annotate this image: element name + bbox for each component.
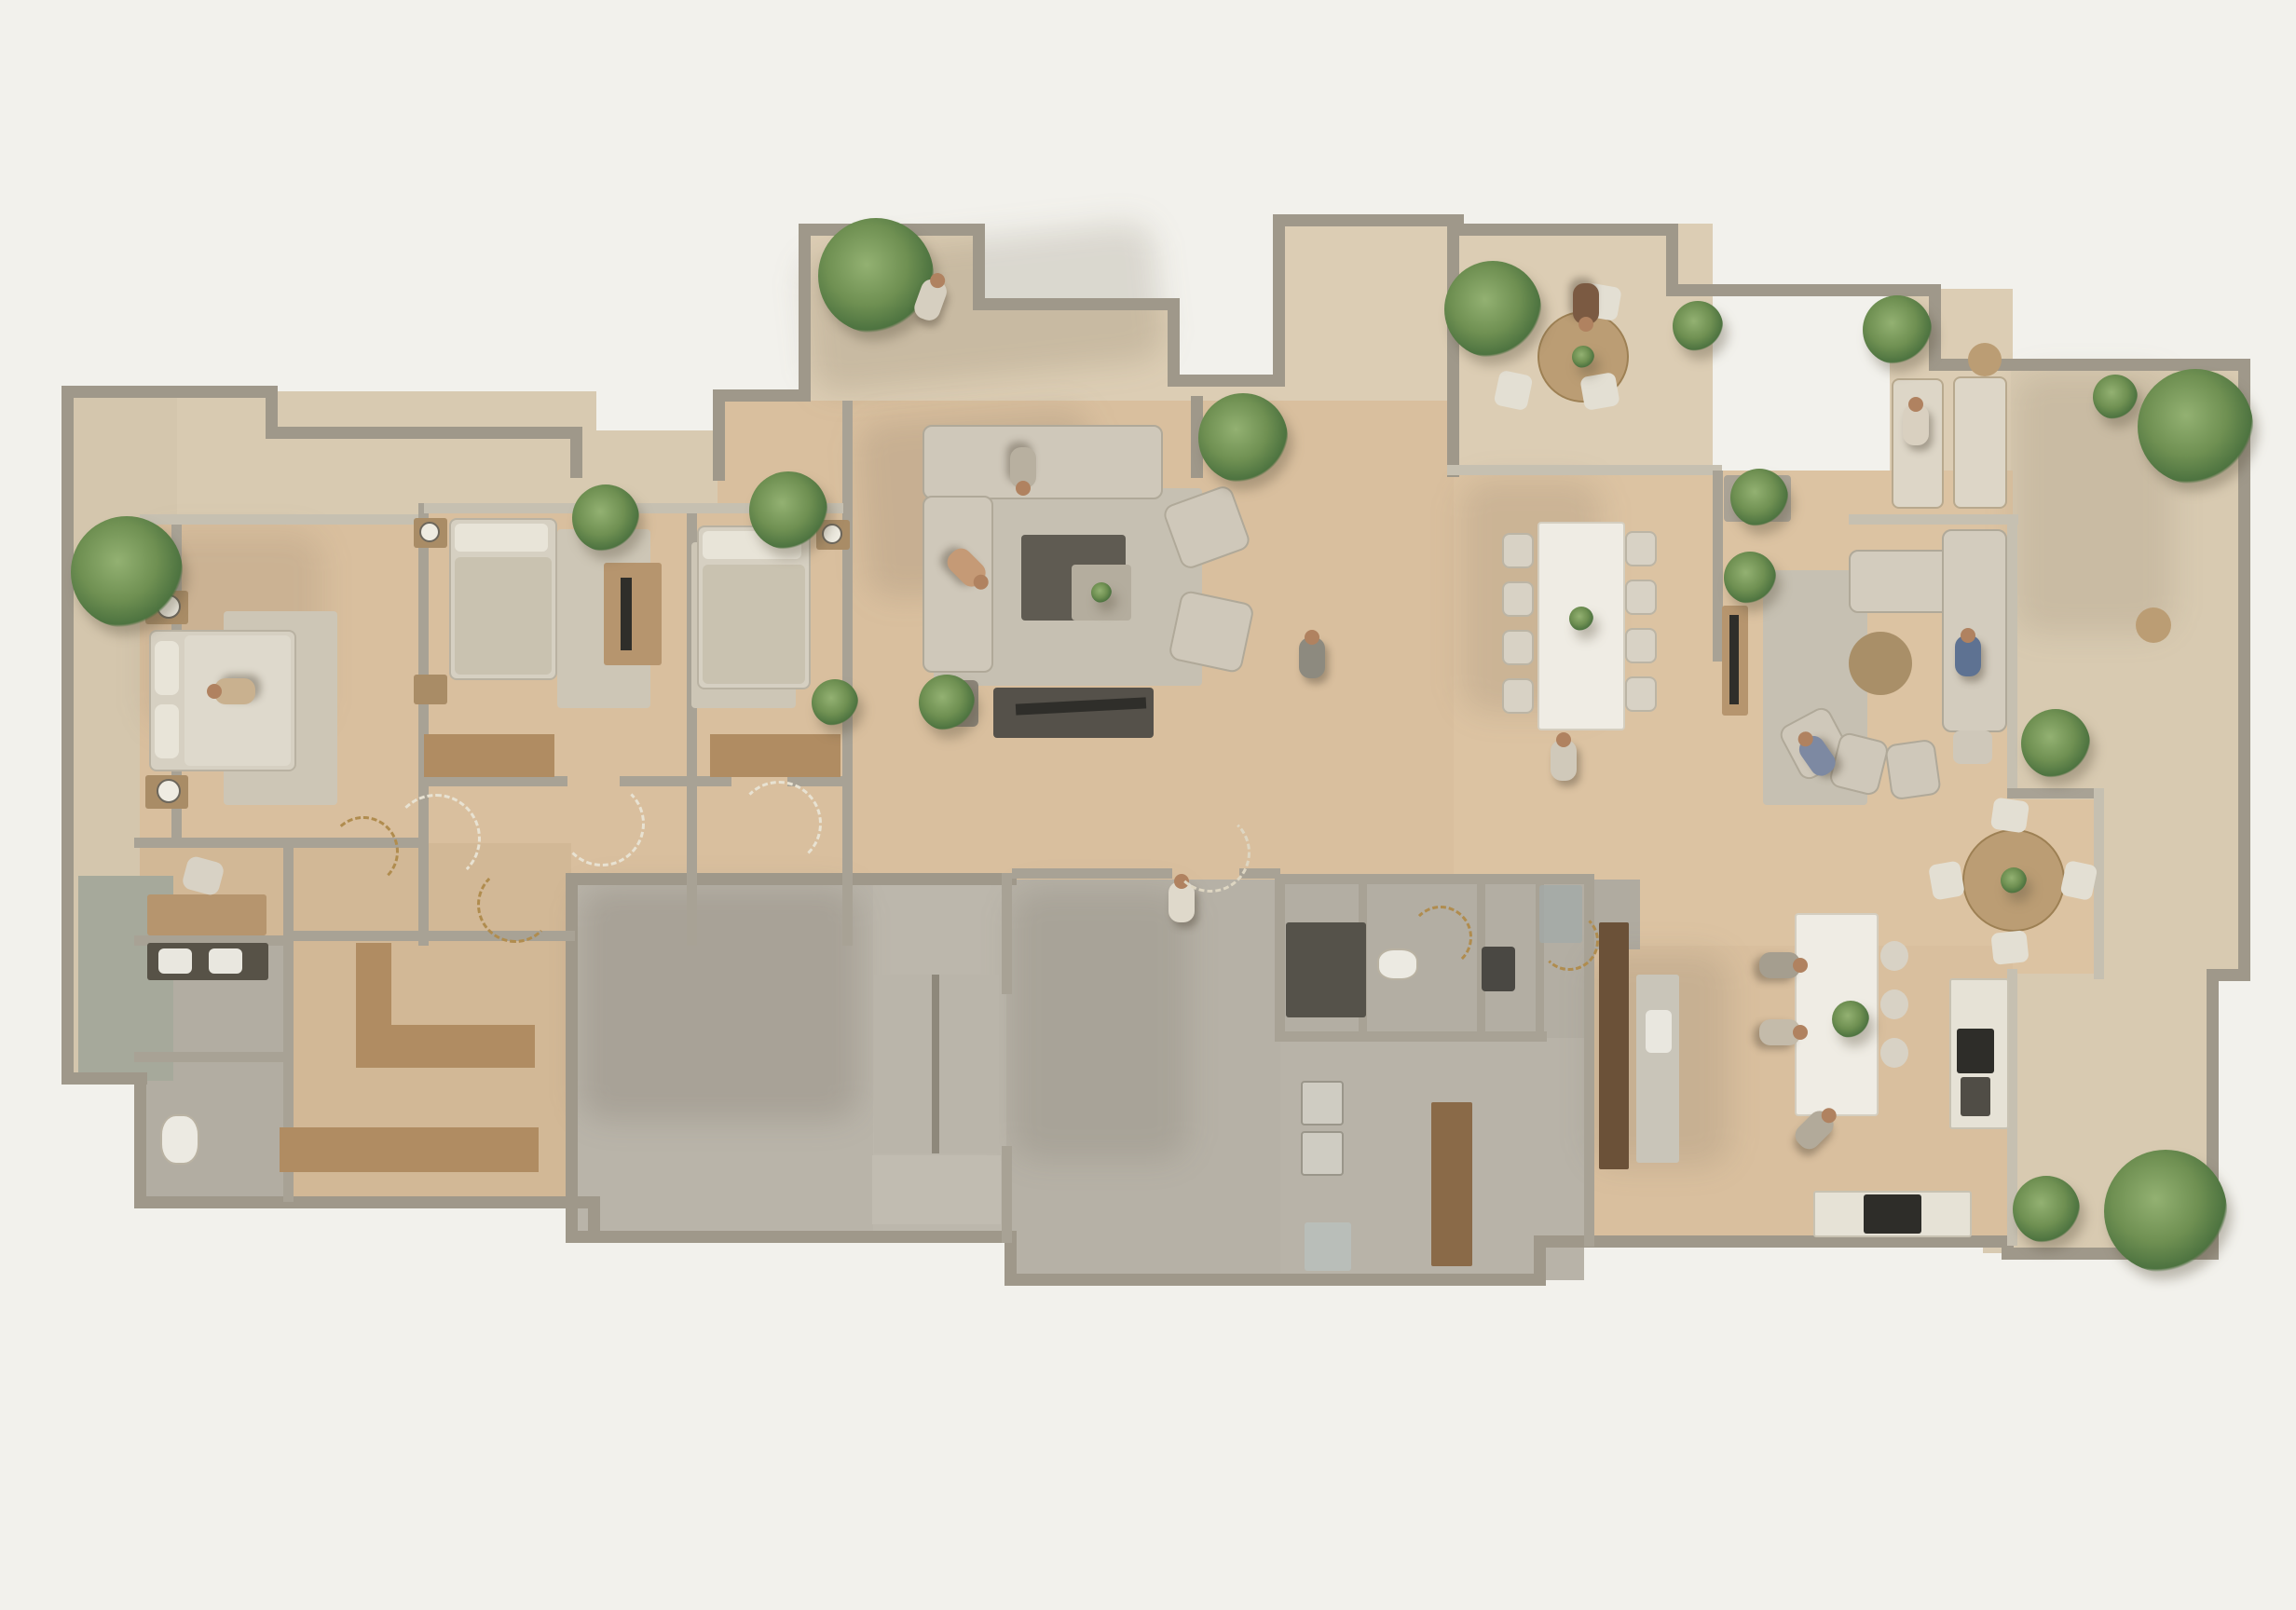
- plant-icon-21: [1832, 1001, 1869, 1038]
- plant-icon-7: [1673, 301, 1723, 351]
- toilet-powder: [1377, 948, 1418, 980]
- sofa-right-top: [1849, 550, 1955, 613]
- wall-outer-top-left: [61, 386, 278, 398]
- stair-flight-1: [874, 975, 934, 1153]
- person-living-sofa-top: [1010, 447, 1036, 496]
- tv-family: [1729, 615, 1739, 704]
- window-wall-breakfast-east: [2094, 788, 2104, 979]
- door-swing-master: [391, 794, 481, 883]
- lamp-master-2: [157, 779, 181, 803]
- person-right-sofa: [1955, 628, 1981, 676]
- wall-outer-top-4: [973, 298, 1180, 310]
- coffee-table-right: [1849, 632, 1912, 695]
- dining-chair-4: [1502, 678, 1534, 714]
- wall-outer-bottom-entry: [1004, 1274, 1546, 1286]
- kitchen-sink: [1646, 1010, 1672, 1053]
- door-swing-closet-1: [328, 816, 399, 887]
- person-living-sofa-top-head: [1016, 481, 1031, 496]
- plant-icon-5: [919, 675, 975, 730]
- armchair-living-2: [1168, 590, 1255, 675]
- plant-icon-13: [2021, 709, 2090, 778]
- door-swing-closet-2: [477, 866, 553, 943]
- breakfast-chair-2: [1990, 930, 2029, 965]
- plant-icon-9: [1730, 469, 1788, 526]
- person-master-bed-head: [207, 684, 222, 699]
- laundry-counter: [1286, 922, 1366, 1017]
- wall-bed3-living: [842, 401, 853, 946]
- wall-bed2-south-b: [620, 776, 731, 786]
- wall-right-jog: [2007, 788, 2104, 798]
- wall-outer-terrace-west: [799, 224, 811, 401]
- stair-divider: [932, 975, 939, 1153]
- wall-living-top-west: [713, 389, 811, 402]
- wall-utility-south: [1275, 1031, 1547, 1042]
- person-dining-table: [1551, 732, 1577, 781]
- bed-2-duvet: [455, 557, 552, 675]
- person-outdoor-table: [1573, 283, 1599, 332]
- wall-outer-step-5: [1273, 214, 1285, 387]
- person-outdoor-table-head: [1578, 317, 1593, 332]
- plant-icon-0: [71, 516, 183, 628]
- wall-living-west-upper: [713, 389, 725, 481]
- person-hall-walking: [1299, 630, 1325, 678]
- door-swing-utility-1: [1409, 906, 1472, 969]
- person-lounger-head: [1908, 397, 1923, 412]
- nightstand-2b: [414, 675, 447, 704]
- dining-chair-5: [1625, 531, 1657, 566]
- wall-outer-bottom-stairs: [566, 1231, 1017, 1243]
- wall-outer-top-6: [1273, 214, 1464, 226]
- desk-office: [147, 894, 266, 935]
- wall-outer-left: [61, 386, 74, 1085]
- wall-outer-step-2: [570, 427, 582, 478]
- closet-bench: [280, 1127, 539, 1172]
- closet-rack-2: [356, 1025, 535, 1068]
- wall-entry-north-a: [1012, 868, 1172, 879]
- gas-stove: [1864, 1194, 1921, 1234]
- sink-suite-1: [158, 948, 192, 974]
- cooktop: [1957, 1029, 1994, 1073]
- side-table-loungers: [1968, 343, 2002, 376]
- sink-unit-powder: [1482, 947, 1515, 991]
- wall-stair-entry-a: [1002, 873, 1012, 994]
- dining-chair-6: [1625, 580, 1657, 615]
- side-table-right-terrace: [2136, 607, 2171, 643]
- wall-bath-wc: [134, 1052, 288, 1062]
- plant-icon-15: [2104, 1150, 2227, 1273]
- wall-outer-step-4: [1168, 298, 1180, 387]
- wall-stair-entry-b: [1002, 1146, 1012, 1243]
- person-island-1-head: [1793, 958, 1808, 973]
- armchair-right-2: [1884, 739, 1942, 801]
- stool-3: [1880, 1038, 1908, 1068]
- dining-chair-3: [1502, 630, 1534, 665]
- person-island-2: [1759, 1019, 1808, 1045]
- bed-2-pillows: [455, 524, 548, 552]
- sofa-living-top: [922, 425, 1163, 499]
- dryer: [1301, 1131, 1344, 1176]
- wall-utility-west: [1275, 874, 1285, 1042]
- wall-void-west: [566, 873, 578, 1243]
- wall-outer-top-5: [1168, 375, 1285, 387]
- door-swing-hall-entry: [1170, 812, 1250, 893]
- person-master-bed: [207, 678, 255, 704]
- plant-icon-11: [2093, 375, 2138, 419]
- stair-flight-2: [939, 975, 999, 1153]
- shadow-entry: [1011, 890, 1188, 1160]
- wall-outer-top-2: [266, 427, 582, 439]
- breakfast-chair-3: [1928, 860, 1965, 900]
- toilet-suite: [160, 1114, 199, 1165]
- plant-icon-12: [2138, 369, 2253, 484]
- console-bedroom-3: [634, 563, 662, 665]
- dining-chair-7: [1625, 628, 1657, 663]
- lounger-2: [1953, 376, 2007, 509]
- plant-icon-17: [1569, 607, 1593, 631]
- wall-outer-top-8: [1666, 284, 1899, 296]
- wardrobe-bedroom-2: [424, 734, 554, 777]
- oven: [1961, 1077, 1990, 1116]
- bed-master-pillow-2: [155, 704, 179, 758]
- bed-master-pillow-1: [155, 641, 179, 695]
- plant-icon-16: [812, 679, 858, 726]
- stool-1: [1880, 941, 1908, 971]
- door-wood-hall: [1431, 1102, 1472, 1266]
- shadow-void: [580, 887, 859, 1120]
- wardrobe-bedroom-3: [710, 734, 840, 777]
- wall-dining-west: [1447, 224, 1459, 477]
- wall-outer-top-7: [1452, 224, 1678, 236]
- plant-icon-10: [1724, 552, 1776, 604]
- kitchen-counter-west: [1636, 975, 1679, 1163]
- plant-icon-19: [2001, 867, 2027, 894]
- dining-chair-2: [1502, 581, 1534, 617]
- ottoman-right: [1953, 730, 1992, 764]
- door-swing-bedroom-3: [736, 781, 822, 866]
- door-swing-utility-2: [1539, 911, 1599, 971]
- tv-bedroom-2: [621, 578, 632, 650]
- window-wall-master-north: [140, 514, 429, 525]
- plant-icon-2: [749, 471, 827, 550]
- plant-icon-6: [1444, 261, 1541, 358]
- person-island-2-head: [1793, 1025, 1808, 1040]
- plant-icon-20: [1572, 346, 1594, 368]
- window-wall-dining-north: [1447, 465, 1722, 475]
- wall-bed2-south-a: [418, 776, 567, 786]
- person-hall-walking-head: [1305, 630, 1319, 645]
- plant-icon-1: [572, 484, 639, 552]
- floor-plan-canvas: 2: [0, 0, 2296, 1610]
- lamp-3: [822, 524, 842, 544]
- lamp-2a: [419, 522, 440, 542]
- outdoor-chair-4: [1579, 372, 1620, 411]
- shower-utility: [1305, 1222, 1351, 1271]
- kitchen-tall-units: [1599, 922, 1629, 1169]
- person-island-1: [1759, 952, 1808, 978]
- sink-suite-2: [209, 948, 242, 974]
- person-dining-table-head: [1556, 732, 1571, 747]
- plant-icon-4: [1198, 393, 1288, 483]
- bed-3-duvet: [703, 565, 805, 684]
- person-right-sofa-head: [1961, 628, 1975, 643]
- dining-chair-1: [1502, 533, 1534, 568]
- door-swing-bedroom-2: [559, 781, 645, 866]
- washer: [1301, 1081, 1344, 1126]
- stair-landing: [872, 1155, 1001, 1224]
- wall-utility-north: [1275, 874, 1592, 884]
- wall-outer-bottom-suite: [134, 1196, 600, 1208]
- closet-rack-1: [356, 943, 391, 1029]
- wall-suite-left: [134, 1072, 146, 1208]
- dining-chair-8: [1625, 676, 1657, 712]
- person-lounger: [1903, 397, 1929, 445]
- stool-2: [1880, 989, 1908, 1019]
- wall-void-north: [566, 873, 1017, 885]
- plant-icon-14: [2013, 1176, 2080, 1243]
- plant-icon-8: [1863, 295, 1932, 364]
- window-wall-right-living-north: [1849, 514, 2018, 525]
- window-wall-right-living-east: [2007, 514, 2017, 798]
- wall-outer-step-11: [588, 1196, 600, 1243]
- plant-icon-18: [1091, 582, 1112, 603]
- breakfast-chair-1: [1990, 798, 2029, 834]
